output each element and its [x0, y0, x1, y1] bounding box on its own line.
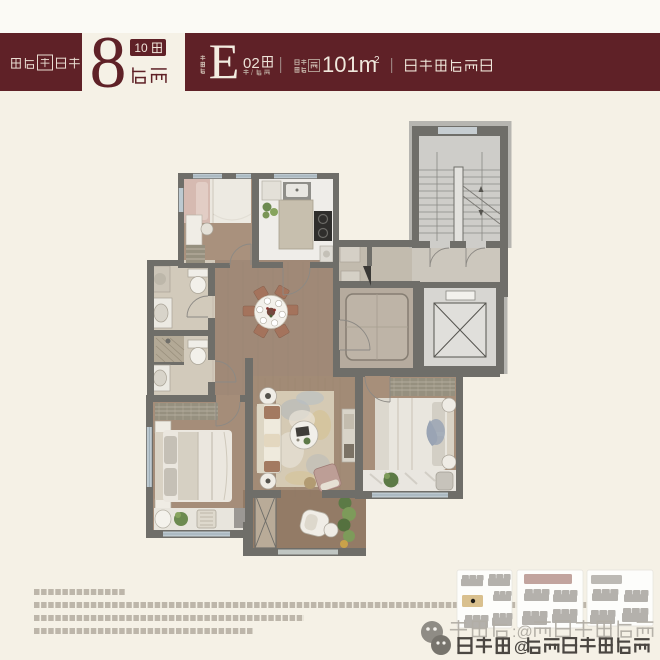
- svg-text:/: /: [251, 70, 253, 77]
- svg-text:10: 10: [134, 41, 148, 55]
- svg-text:E: E: [209, 33, 240, 89]
- svg-text:8: 8: [90, 22, 127, 104]
- svg-text:101m: 101m: [322, 52, 377, 77]
- svg-text:2: 2: [374, 55, 380, 66]
